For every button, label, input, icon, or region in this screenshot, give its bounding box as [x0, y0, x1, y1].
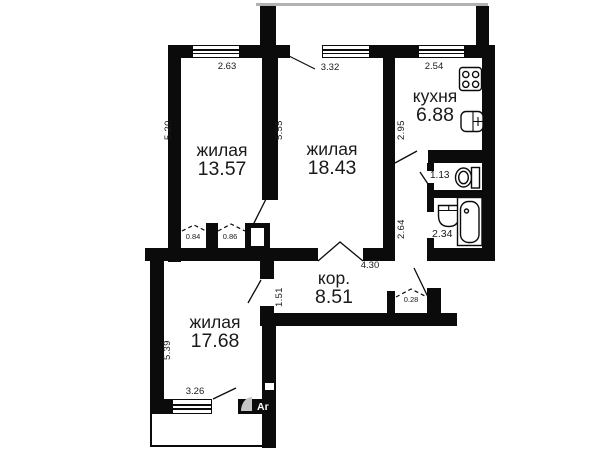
watermark-fragment: [265, 383, 274, 390]
wall-corridor-left-upper: [260, 261, 274, 279]
bathroom-area: 2.34: [432, 228, 452, 240]
dim-room2-depth: 5.55: [274, 113, 285, 147]
kitchen-name: кухня: [399, 87, 471, 105]
dim-room2-width: 3.32: [313, 62, 347, 73]
room1-label: жилая 13.57: [178, 141, 266, 180]
bottom-balcony: [150, 414, 264, 447]
symbols-overlay: [0, 0, 611, 460]
door-leaf-balcony: [213, 388, 236, 399]
dim-room1-depth: 5.20: [163, 113, 174, 147]
closet-left-area: 0.84: [181, 232, 205, 241]
toilet-icon: [456, 168, 480, 189]
wall-bath-left-upper: [427, 198, 434, 212]
corridor-label: кор. 8.51: [298, 269, 370, 308]
closet-right-area: 0.86: [218, 232, 242, 241]
dim-hall-depth: 2.64: [396, 212, 407, 246]
opening-corridor-room2: [318, 242, 363, 261]
wc-area: 1.13: [430, 170, 449, 181]
wall-room3-bottom-1: [150, 399, 172, 414]
wall-room3-left: [150, 248, 164, 414]
window-room1: [192, 45, 240, 58]
window-kitchen: [418, 45, 465, 58]
window-pane-line: [419, 53, 464, 55]
room1-name: жилая: [178, 141, 266, 159]
dimension-leader-line: [289, 56, 315, 69]
window-pane-line: [173, 408, 211, 410]
dim-corridor-width: 4.30: [353, 260, 387, 271]
dim-room3-width: 3.26: [178, 386, 212, 397]
room3-name: жилая: [172, 313, 258, 331]
room1-area: 13.57: [178, 159, 266, 179]
corridor-area: 8.51: [298, 287, 370, 307]
dim-kitchen-width: 2.54: [417, 61, 451, 72]
window-pane-line: [193, 53, 239, 55]
window-pane-line: [173, 404, 211, 406]
wall-room2-kitchen-divider: [383, 45, 395, 260]
wall-wc-bath-divider: [427, 190, 483, 198]
top-balcony-right-wall: [476, 6, 489, 46]
room2-area: 18.43: [292, 158, 372, 178]
wall-kitchen-bottom: [428, 150, 495, 163]
top-balcony-left-wall: [260, 6, 276, 46]
closet-hall-area: 0.28: [399, 295, 423, 304]
wash-basin-icon: [439, 206, 460, 227]
top-balcony-parapet: [256, 3, 488, 6]
wall-bath-bottom: [427, 248, 493, 261]
window-pane-line: [323, 53, 369, 55]
window-room3: [172, 399, 212, 414]
room2-label: жилая 18.43: [292, 140, 372, 179]
wall-closet-divider: [206, 223, 218, 250]
room3-area: 17.68: [172, 331, 258, 351]
wall-hall-closet-left: [387, 291, 395, 314]
door-leaf-room3: [248, 280, 261, 303]
door-leaf-kitchen: [395, 151, 417, 163]
corridor-name: кор.: [298, 269, 370, 287]
dim-room1-width: 2.63: [209, 61, 245, 72]
closet-left-front-dashes: [182, 225, 206, 231]
dim-corridor-depth: 1.51: [274, 282, 285, 312]
window-pane-line: [323, 49, 369, 51]
floor-plan: Аг: [0, 0, 611, 460]
kitchen-area: 6.88: [399, 105, 471, 125]
wall-corridor-top-left: [145, 248, 318, 261]
kitchen-label: кухня 6.88: [399, 87, 471, 126]
dim-kitchen-depth: 2.95: [396, 113, 407, 147]
room3-label: жилая 17.68: [172, 313, 258, 352]
window-pane-line: [419, 49, 464, 51]
dim-room3-depth: 5.39: [162, 333, 173, 367]
watermark-text: Аг: [257, 401, 269, 413]
door-jamb-niche: [251, 228, 264, 246]
window-pane-line: [193, 49, 239, 51]
window-room2: [322, 45, 370, 58]
closet-right-front-dashes: [218, 224, 245, 231]
wall-hall-closet-right: [427, 288, 441, 317]
room2-name: жилая: [292, 140, 372, 158]
bathtub-icon: [458, 198, 483, 246]
door-leaf-entrance: [414, 268, 428, 297]
